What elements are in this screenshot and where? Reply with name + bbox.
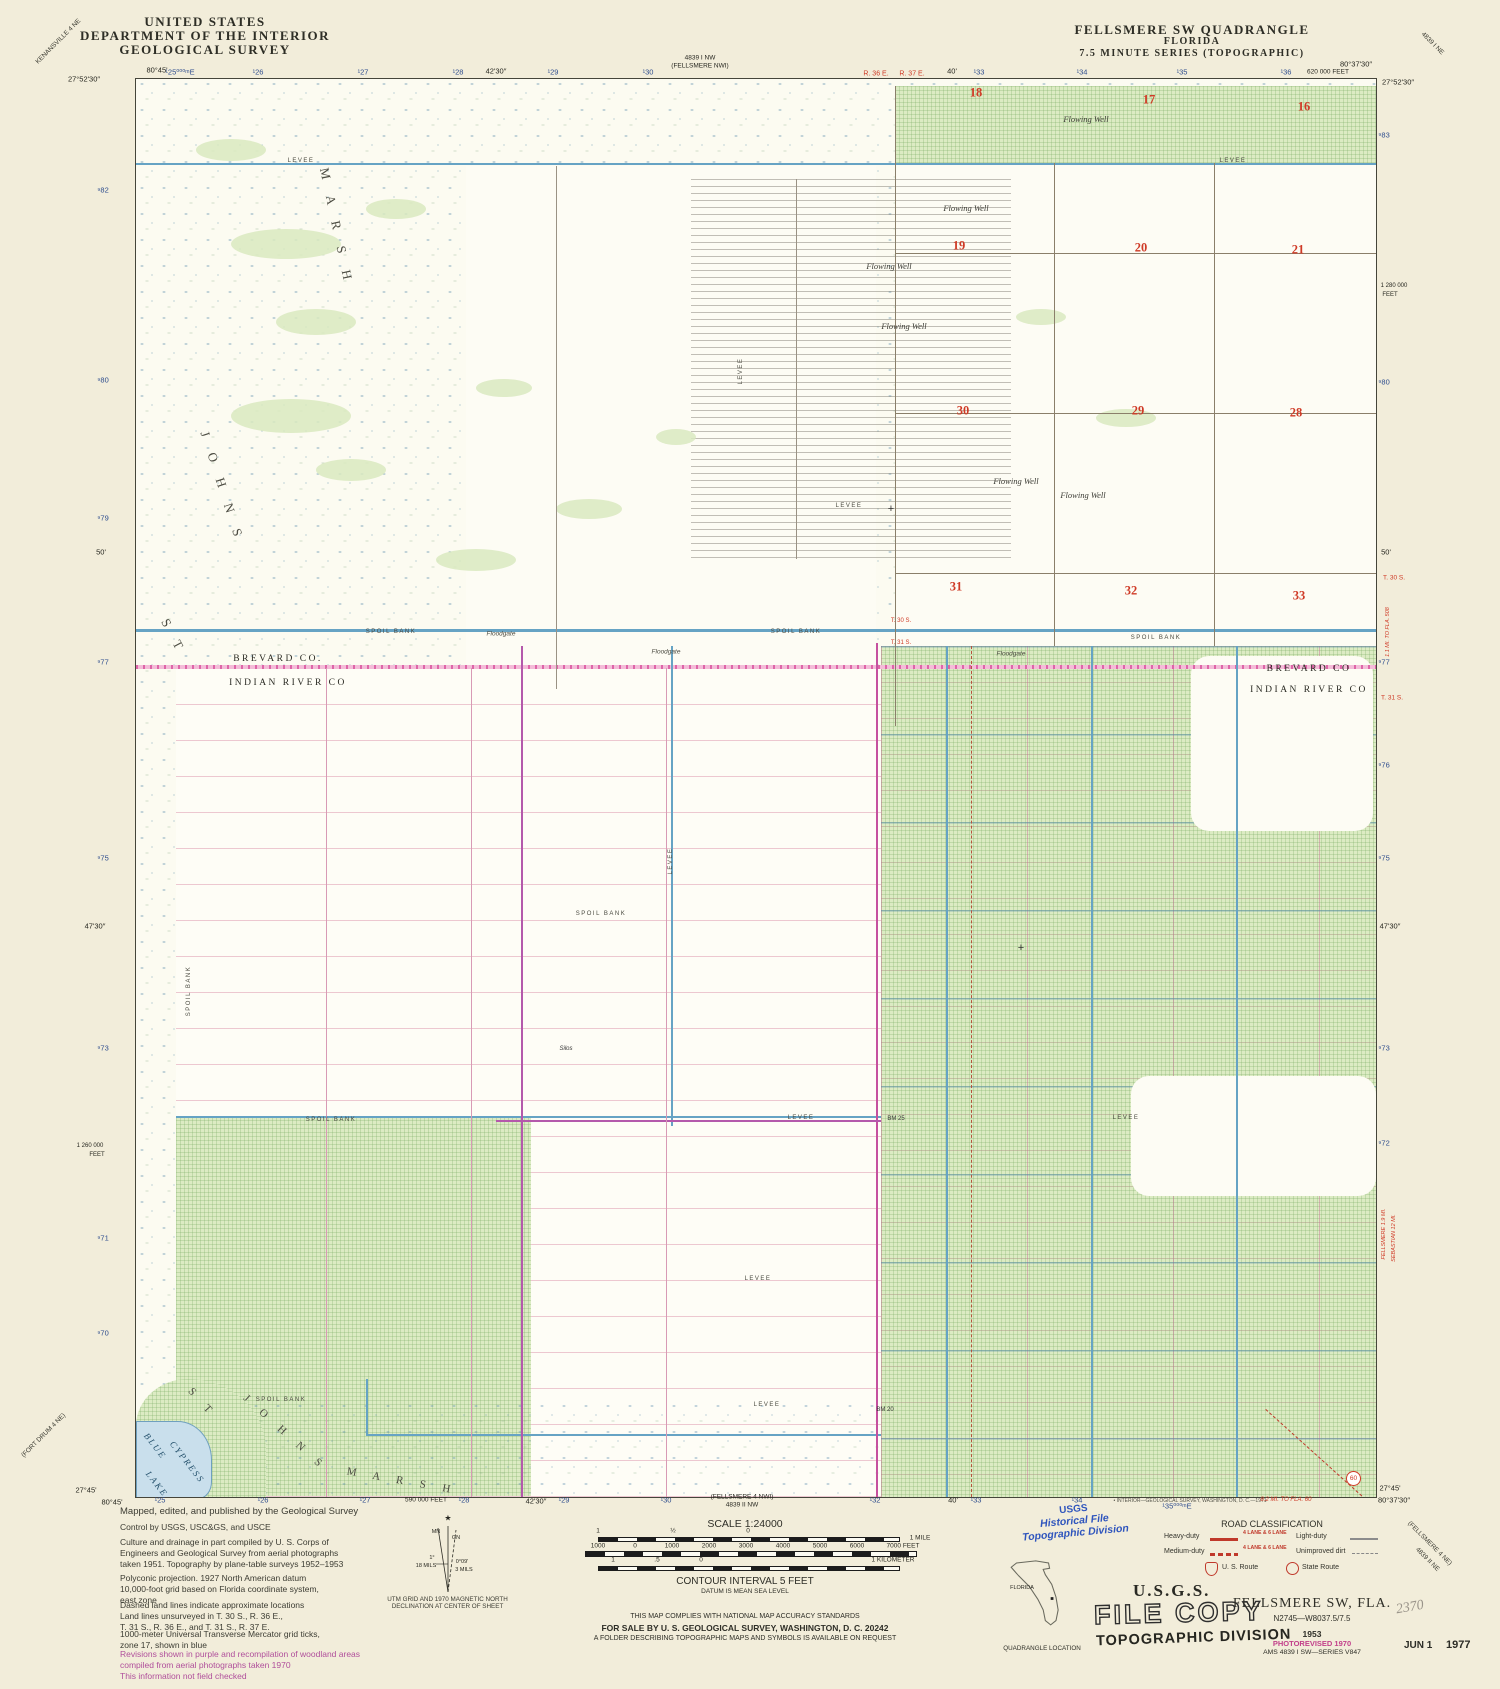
scale-tick: 5000 xyxy=(813,1543,827,1550)
corner-coordinate: 27°45' xyxy=(1379,1484,1400,1493)
marsh-name: J O H N S xyxy=(197,429,248,545)
sheet-year: 1953 xyxy=(1303,1629,1322,1639)
range-line xyxy=(895,86,896,726)
land-grid-line xyxy=(666,668,667,1498)
declination-degrees: 0°09' xyxy=(456,1559,468,1565)
corner-coordinate: 80°37'30″ xyxy=(1340,60,1372,69)
graticule-cross-icon: + xyxy=(1018,942,1024,954)
historical-file-stamp: USGS Historical File Topographic Divisio… xyxy=(1011,1499,1139,1545)
levee-label: LEVEE xyxy=(745,1276,772,1282)
levee-label: LEVEE xyxy=(788,1115,815,1121)
heavy-duty-symbol xyxy=(1210,1538,1238,1541)
road-class-unimproved: Unimproved dirt xyxy=(1296,1548,1345,1555)
medium-duty-symbol xyxy=(1210,1553,1238,1556)
scale-tick: 1 xyxy=(596,1528,600,1535)
state-route-label: State Route xyxy=(1302,1564,1339,1571)
vegetation-patch xyxy=(476,379,532,397)
marsh-name: S T xyxy=(157,616,190,658)
scale-tick: 6000 xyxy=(850,1543,864,1550)
spoil-bank-label: SPOIL BANK xyxy=(256,1397,306,1403)
utm-tick-label: ¹27 xyxy=(360,1496,371,1505)
township-label: T. 31 S. xyxy=(1381,695,1403,702)
utm-tick-label: ⁹72 xyxy=(1378,1139,1390,1148)
graticule-tick: 47'30″ xyxy=(85,922,106,931)
scale-tick: 1 xyxy=(611,1557,615,1564)
flowing-well-label: Flowing Well xyxy=(1060,490,1105,500)
light-duty-symbol xyxy=(1350,1538,1378,1540)
spoil-bank-label: SPOIL BANK xyxy=(576,911,626,917)
lanes-label: 4 LANE & 6 LANE xyxy=(1243,1530,1287,1536)
flowing-well-label: Flowing Well xyxy=(1063,114,1108,124)
flowing-well-label: Flowing Well xyxy=(881,321,926,331)
section-line xyxy=(895,573,1376,574)
scale-tick: 0 xyxy=(633,1543,637,1550)
revision-boundary xyxy=(876,643,878,1497)
utm-tick-label: ¹32 xyxy=(870,1496,881,1505)
scale-tick: .5 xyxy=(654,1557,659,1564)
section-number: 29 xyxy=(1132,404,1145,419)
graticule-cross-icon: + xyxy=(888,503,894,515)
scale-tick: 1000 xyxy=(665,1543,679,1550)
map-area: 18 17 16 19 20 21 30 29 28 31 32 33 Flow… xyxy=(135,78,1377,1498)
levee-canal xyxy=(136,163,1376,165)
accuracy-note: THIS MAP COMPLIES WITH NATIONAL MAP ACCU… xyxy=(630,1613,859,1620)
scale-title: SCALE 1:24000 xyxy=(707,1518,782,1530)
section-number: 17 xyxy=(1143,93,1156,108)
scale-tick: 0 xyxy=(699,1557,703,1564)
range-label: R. 36 E. xyxy=(863,71,888,78)
credit-culture: Culture and drainage in part compiled by… xyxy=(120,1537,425,1570)
spoil-bank-label: SPOIL BANK xyxy=(771,629,821,635)
declination-degrees: 1° xyxy=(429,1555,434,1561)
scale-tick: 3000 xyxy=(739,1543,753,1550)
scale-tick: 7000 FEET xyxy=(887,1543,920,1550)
county-boundary-line xyxy=(136,665,1376,669)
flowing-well-label: Flowing Well xyxy=(866,261,911,271)
adjacent-quad-top-left: KENANSVILLE 4 NE xyxy=(34,18,82,66)
section-number: 31 xyxy=(950,580,963,595)
utm-tick-label: ¹35 xyxy=(1177,68,1188,77)
km-scale-bar xyxy=(598,1566,900,1571)
scale-tick: 1 MILE xyxy=(910,1535,931,1542)
levee-canal xyxy=(946,646,948,1497)
vegetation-patch xyxy=(1016,309,1066,325)
utm-tick-label: ⁹75 xyxy=(1378,854,1390,863)
credit-mapped-by: Mapped, edited, and published by the Geo… xyxy=(120,1506,425,1518)
credit-control: Control by USGS, USC&GS, and USCE xyxy=(120,1522,425,1533)
vegetation-patch xyxy=(436,549,516,571)
adjacent-quad-bottom-left: (FORT DRUM 4 NE) xyxy=(20,1412,67,1459)
road-class-light: Light-duty xyxy=(1296,1533,1327,1540)
land-grid-line xyxy=(471,668,472,1498)
field-boundary xyxy=(556,166,557,689)
utm-tick-label: ⁹73 xyxy=(97,1044,109,1053)
credit-revision: Revisions shown in purple and recompilat… xyxy=(120,1649,425,1682)
corner-coordinate: 80°45' xyxy=(146,66,167,75)
magnetic-north-label: MN xyxy=(432,1529,441,1535)
utm-tick-label: ¹33 xyxy=(971,1496,982,1505)
utm-tick-label: ⁹71 xyxy=(97,1234,109,1243)
state-grid-label: 620 000 FEET xyxy=(1307,69,1349,76)
spoil-bank-label: SPOIL BANK xyxy=(306,1117,356,1123)
clearing-patch xyxy=(1131,1076,1376,1196)
levee-canal xyxy=(176,1116,881,1118)
trail-line xyxy=(971,646,972,1497)
section-number: 33 xyxy=(1293,589,1306,604)
township-label: T. 30 S. xyxy=(891,618,911,624)
vegetation-patch xyxy=(276,309,356,335)
levee-canal xyxy=(1091,646,1093,1497)
section-number: 20 xyxy=(1135,241,1148,256)
county-name: INDIAN RIVER CO xyxy=(1250,685,1368,695)
quad-location-caption: QUADRANGLE LOCATION xyxy=(1003,1645,1081,1652)
grid-north-label: GN xyxy=(452,1535,460,1541)
declination-diagram xyxy=(392,1512,502,1602)
folder-note: A FOLDER DESCRIBING TOPOGRAPHIC MAPS AND… xyxy=(594,1635,897,1642)
state-grid-label: FEET xyxy=(89,1152,104,1158)
marsh-name: M A R S H xyxy=(316,166,357,287)
declination-caption: UTM GRID AND 1970 MAGNETIC NORTH DECLINA… xyxy=(360,1596,535,1610)
vegetation-patch xyxy=(316,459,386,481)
destination-note: FELLSMERE 1.9 MI. xyxy=(1381,1208,1387,1259)
floodgate-label: Floodgate xyxy=(487,631,516,638)
agency-line-3: GEOLOGICAL SURVEY xyxy=(119,42,290,58)
utm-tick-label: ¹26 xyxy=(258,1496,269,1505)
utm-tick-label: ⁹70 xyxy=(97,1329,109,1338)
sheet-title: FELLSMERE SW, FLA. xyxy=(1233,1596,1391,1612)
destination-note: SEBASTIAN 12 MI. xyxy=(1391,1214,1397,1262)
state-grid-label: 590 000 FEET xyxy=(405,1497,447,1504)
vegetation-patch xyxy=(231,399,351,433)
levee-label: LEVEE xyxy=(754,1402,781,1408)
levee-canal xyxy=(1236,646,1238,1497)
utm-tick-label: ¹27 xyxy=(358,68,369,77)
quad-state: FLORIDA xyxy=(1164,36,1221,47)
vegetation-patch xyxy=(556,499,622,519)
graticule-tick: 40' xyxy=(947,67,957,76)
levee-canal xyxy=(136,629,1376,632)
levee-label: LEVEE xyxy=(1113,1115,1140,1121)
land-grid-line xyxy=(326,668,327,1498)
unimproved-dirt-symbol xyxy=(1352,1553,1378,1554)
utm-tick-label: ¹26 xyxy=(253,68,264,77)
credit-utm: 1000-meter Universal Transverse Mercator… xyxy=(120,1629,425,1651)
floodgate-label: Floodgate xyxy=(652,649,681,656)
spoil-bank-label: SPOIL BANK xyxy=(186,966,192,1016)
utm-tick-label: ¹28 xyxy=(459,1496,470,1505)
silos-label: Silos xyxy=(559,1046,572,1052)
utm-tick-label: ⁹79 xyxy=(97,514,109,523)
section-number: 32 xyxy=(1125,584,1138,599)
section-number: 16 xyxy=(1298,100,1311,115)
state-route-circle-icon xyxy=(1286,1562,1299,1575)
utm-tick-label: ¹30 xyxy=(643,68,654,77)
utm-tick-label: ⁹75 xyxy=(97,854,109,863)
scale-tick: 2000 xyxy=(702,1543,716,1550)
range-label: R. 37 E. xyxy=(899,71,924,78)
utm-tick-label: ¹28 xyxy=(453,68,464,77)
utm-tick-label: ¹36 xyxy=(1281,68,1292,77)
utm-tick-label: ⁹77 xyxy=(97,658,109,667)
revision-line xyxy=(496,1120,881,1122)
section-number: 30 xyxy=(957,404,970,419)
field-boundary xyxy=(796,179,797,559)
revision-line xyxy=(521,646,523,1498)
north-star-icon: ★ xyxy=(444,1514,451,1523)
state-grid-label: FEET xyxy=(1382,292,1397,298)
photorevised-note: PHOTOREVISED 1970 xyxy=(1273,1639,1351,1648)
utm-tick-label: ⁹82 xyxy=(97,186,109,195)
road-classification-title: ROAD CLASSIFICATION xyxy=(1221,1519,1323,1529)
adjoining-sheet-number: 4839 II NW xyxy=(726,1502,759,1509)
township-label: T. 30 S. xyxy=(1383,575,1405,582)
date-stamp-year: 1977 xyxy=(1446,1639,1470,1651)
imprint-note: • INTERIOR—GEOLOGICAL SURVEY, WASHINGTON… xyxy=(1113,1498,1266,1504)
lanes-label: 4 LANE & 6 LANE xyxy=(1243,1545,1287,1551)
scale-tick: ½ xyxy=(670,1528,675,1535)
county-name: BREVARD CO. xyxy=(233,654,323,664)
levee-label: LEVEE xyxy=(288,158,315,164)
corner-coordinate: 80°37'30″ xyxy=(1378,1496,1410,1505)
woodland-region xyxy=(895,86,1376,163)
utm-tick-label: ⁹80 xyxy=(97,376,109,385)
utm-tick-label: ¹25⁰⁰⁰ᵐE xyxy=(165,68,194,77)
vegetation-patch xyxy=(231,229,341,259)
section-number: 28 xyxy=(1290,406,1303,421)
state-route-badge: 60 xyxy=(1346,1471,1361,1486)
section-number: 18 xyxy=(970,86,983,101)
benchmark-label: BM 25 xyxy=(887,1116,904,1122)
vegetation-patch xyxy=(656,429,696,445)
graticule-tick: 50' xyxy=(1381,548,1391,557)
graticule-tick: 40' xyxy=(948,1496,958,1505)
scale-tick: 0 xyxy=(746,1528,750,1535)
sale-note: FOR SALE BY U. S. GEOLOGICAL SURVEY, WAS… xyxy=(601,1623,888,1633)
sheet-coordinates: N2745—W8037.5/7.5 xyxy=(1274,1614,1351,1623)
road-class-heavy: Heavy-duty xyxy=(1164,1533,1199,1540)
flowing-well-label: Flowing Well xyxy=(993,476,1038,486)
utm-tick-label: ⁹77 xyxy=(1378,658,1390,667)
utm-tick-label: ¹34 xyxy=(1077,68,1088,77)
datum-note: DATUM IS MEAN SEA LEVEL xyxy=(701,1588,789,1595)
scale-tick: 1 KILOMETER xyxy=(872,1557,915,1564)
quad-location-dot xyxy=(1051,1597,1054,1600)
vegetation-patch xyxy=(196,139,266,161)
utm-tick-label: ⁹80 xyxy=(1378,378,1390,387)
state-label: FLORIDA xyxy=(1010,1585,1034,1591)
floodgate-label: Floodgate xyxy=(997,651,1026,658)
quad-series: 7.5 MINUTE SERIES (TOPOGRAPHIC) xyxy=(1079,48,1304,59)
declination-mils: 3 MILS xyxy=(455,1567,472,1573)
spoil-bank-label: SPOIL BANK xyxy=(1131,635,1181,641)
levee-label: LEVEE xyxy=(1220,158,1247,164)
mile-scale-bar xyxy=(598,1537,900,1542)
levee-canal xyxy=(366,1379,368,1436)
graticule-tick: 47'30″ xyxy=(1380,922,1401,931)
scale-tick: 4000 xyxy=(776,1543,790,1550)
adjacent-quad-top-right: 4839 I NE xyxy=(1420,31,1445,56)
township-label: T. 31 S. xyxy=(891,640,911,646)
corner-coordinate: 27°52'30″ xyxy=(68,75,100,84)
us-route-label: U. S. Route xyxy=(1222,1564,1258,1571)
state-outline-map xyxy=(1008,1556,1072,1634)
clearing-patch xyxy=(1191,656,1373,831)
vegetation-patch xyxy=(1096,409,1156,427)
vegetation-patch xyxy=(366,199,426,219)
road-class-medium: Medium-duty xyxy=(1164,1548,1204,1555)
county-name: BREVARD CO xyxy=(1267,664,1352,674)
levee-label: LEVEE xyxy=(836,503,863,509)
state-grid-label: 1 280 000 xyxy=(1381,283,1408,289)
utm-tick-label: ¹29 xyxy=(559,1496,570,1505)
graticule-tick: 50' xyxy=(96,548,106,557)
ams-note: AMS 4839 I SW—SERIES V847 xyxy=(1263,1649,1361,1656)
benchmark-label: BM 20 xyxy=(876,1407,893,1413)
contour-interval: CONTOUR INTERVAL 5 FEET xyxy=(676,1576,813,1587)
levee-label: LEVEE xyxy=(668,848,674,875)
adjoining-sheet-name: (FELLSMERE 4 NWI) xyxy=(711,1494,774,1501)
flowing-well-label: Flowing Well xyxy=(943,203,988,213)
spoil-bank-label: SPOIL BANK xyxy=(366,629,416,635)
pencil-annotation: 2370 xyxy=(1395,1598,1425,1619)
utm-tick-label: ⁹76 xyxy=(1378,761,1390,770)
section-number: 19 xyxy=(953,239,966,254)
corner-coordinate: 27°52'30″ xyxy=(1382,78,1414,87)
utm-tick-label: ¹29 xyxy=(548,68,559,77)
adjoining-sheet-number: 4839 I NW xyxy=(685,55,716,62)
date-stamp-month: JUN 1 xyxy=(1404,1640,1432,1651)
adjoining-sheet-name: (FELLSMERE NWI) xyxy=(671,63,728,70)
state-grid-label: 1 260 000 xyxy=(77,1143,104,1149)
levee-canal xyxy=(366,1434,881,1436)
declination-mils: 18 MILS xyxy=(416,1563,436,1569)
destination-note: 8.2 MI. TO FLA. 60 xyxy=(1261,1497,1312,1503)
us-route-shield-icon xyxy=(1205,1562,1218,1576)
levee-label: LEVEE xyxy=(738,358,744,385)
utm-tick-label: ⁹73 xyxy=(1378,1044,1390,1053)
destination-note: 1.1 MI. TO FLA. 508 xyxy=(1385,607,1391,657)
utm-tick-label: ¹30 xyxy=(661,1496,672,1505)
feet-scale-bar xyxy=(585,1551,917,1557)
utm-tick-label: ⁹83 xyxy=(1378,131,1390,140)
section-number: 21 xyxy=(1292,243,1305,258)
county-name: INDIAN RIVER CO xyxy=(229,678,347,688)
scale-tick: 1000 xyxy=(591,1543,605,1550)
corner-coordinate: 27°45' xyxy=(75,1486,96,1495)
utm-tick-label: ¹25 xyxy=(155,1496,166,1505)
utm-tick-label: ¹33 xyxy=(974,68,985,77)
usgs-topo-sheet: { "header_left": {"l1":"UNITED STATES","… xyxy=(0,0,1500,1689)
graticule-tick: 42'30″ xyxy=(526,1497,547,1506)
levee-canal xyxy=(671,646,673,1126)
graticule-tick: 42'30″ xyxy=(486,67,507,76)
